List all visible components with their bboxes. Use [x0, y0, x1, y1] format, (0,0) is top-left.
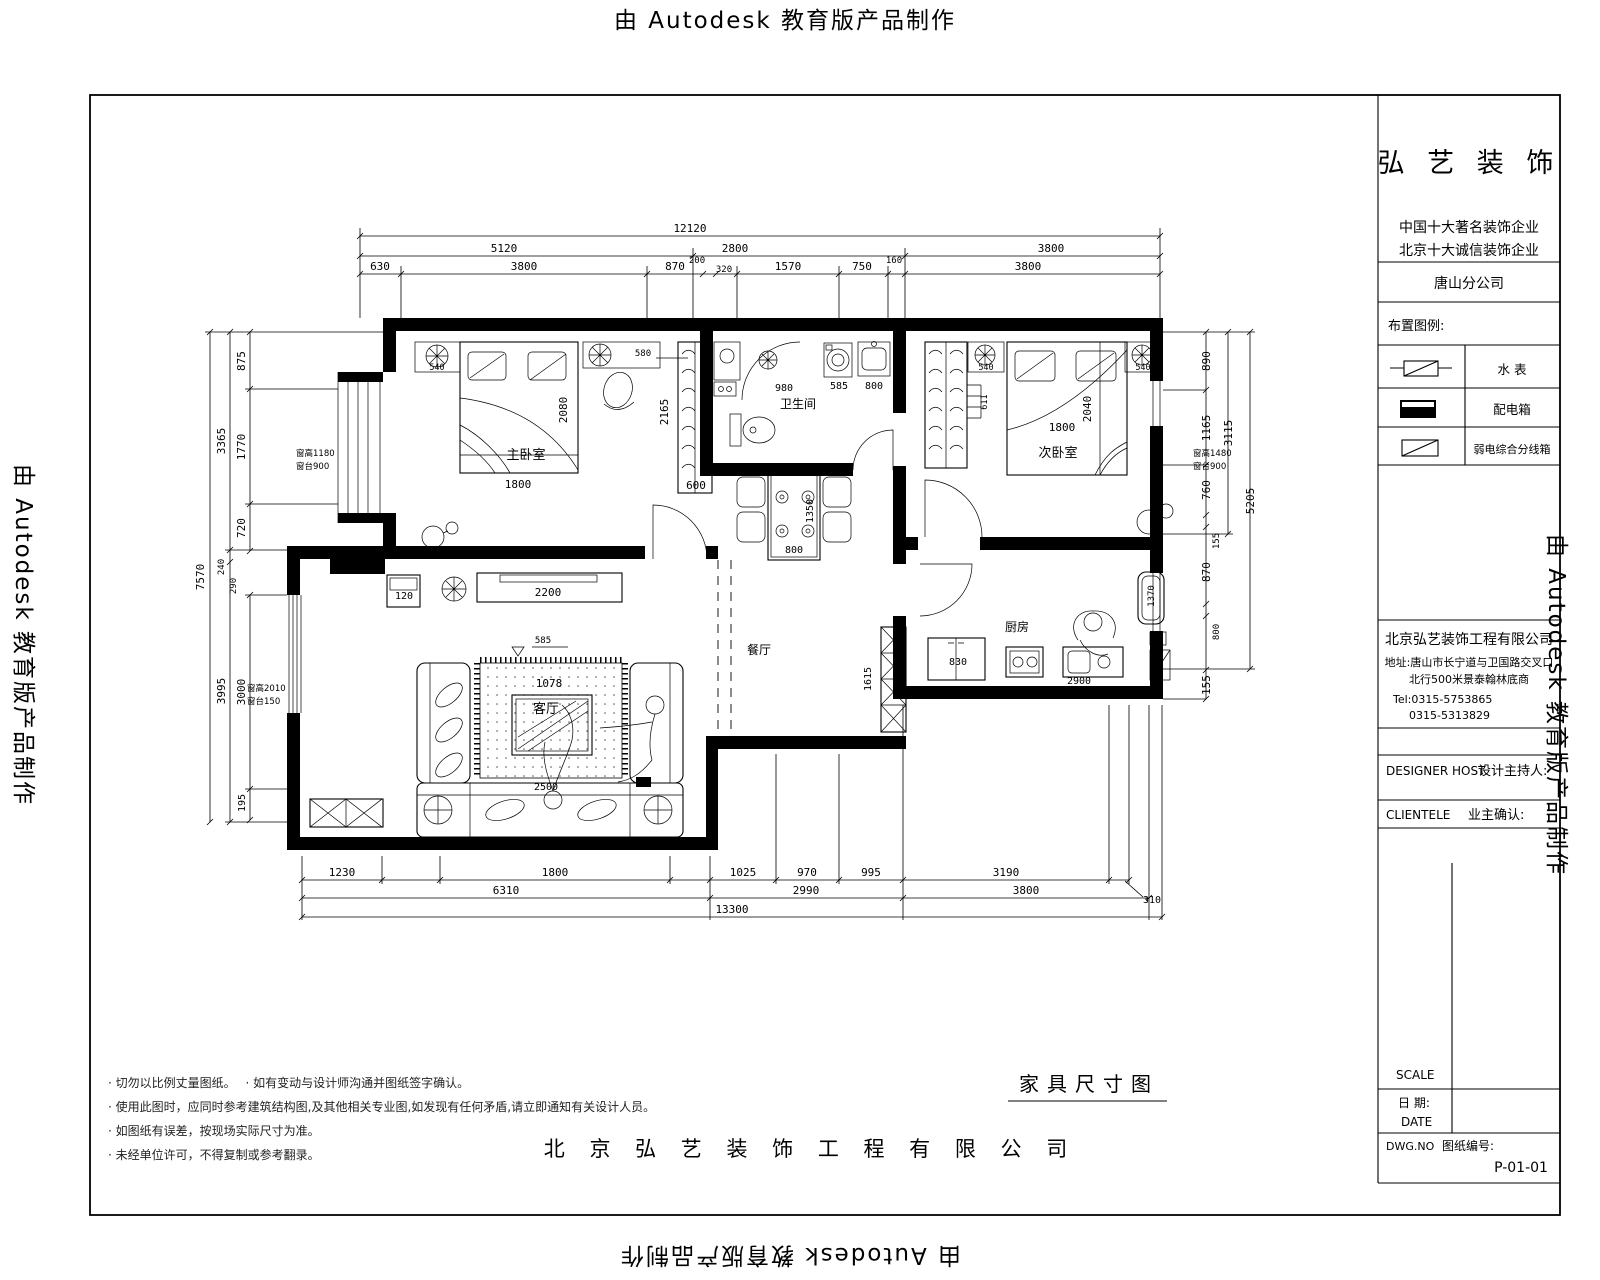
side-table-right	[644, 796, 672, 824]
svg-text:3800: 3800	[1013, 884, 1040, 897]
win-note-3a: 窗高1480	[1193, 448, 1232, 459]
dwgno-label-cn: 图纸编号:	[1442, 1138, 1494, 1153]
legend-symbol-lv-box	[1402, 440, 1438, 456]
room-label-living: 客厅	[533, 701, 559, 717]
svg-text:875: 875	[235, 351, 248, 371]
svg-text:7570: 7570	[194, 564, 207, 591]
date-label-cn: 日 期:	[1398, 1096, 1430, 1110]
door-bedroom2	[925, 480, 982, 537]
win-note-3b: 窗台900	[1193, 461, 1226, 472]
company-tel-1: Tel:0315-5753865	[1392, 693, 1492, 706]
designer-label-cn: 设计主持人:	[1478, 764, 1547, 779]
svg-text:1230: 1230	[329, 866, 356, 879]
dim-text-bottom: 1230 1800 1025 970 995 3190 310 6310 299…	[329, 866, 1161, 916]
note-3: · 如图纸有误差，按现场实际尺寸为准。	[108, 1123, 320, 1138]
stove	[1006, 647, 1043, 677]
note-4: · 未经单位许可，不得复制或参考翻录。	[108, 1147, 320, 1162]
window-bay-master	[338, 372, 380, 523]
svg-text:995: 995	[861, 866, 881, 879]
kitchen-person-figure	[1074, 611, 1116, 655]
company-address-1: 地址:唐山市长宁道与卫国路交叉口	[1385, 655, 1554, 669]
caption-text: 家具尺寸图	[1019, 1072, 1159, 1096]
toilet	[730, 414, 775, 446]
bathroom-fixtures	[714, 342, 890, 401]
wardrobe-bedroom2	[925, 342, 981, 468]
sofa-left-module	[417, 663, 470, 783]
company-address-2: 北行500米景泰翰林底商	[1409, 672, 1529, 686]
door-bathroom	[853, 430, 893, 470]
door-kitchen	[920, 564, 972, 616]
svg-text:890: 890	[1200, 351, 1213, 371]
window-bedroom2	[1153, 381, 1160, 426]
svg-text:310: 310	[1143, 895, 1161, 906]
side-table-left	[424, 796, 452, 824]
svg-text:3000: 3000	[235, 679, 248, 706]
dim-bed2-length: 2040	[1081, 396, 1094, 423]
legend-symbol-distribution-box	[1400, 400, 1436, 418]
dim-wardrobe1-width: 600	[686, 479, 706, 492]
svg-text:155: 155	[1212, 533, 1222, 549]
elevation-mark	[512, 647, 568, 656]
company-logo-text: 弘 艺 装 饰	[1378, 148, 1561, 179]
drawing-caption: 家具尺寸图	[1008, 1072, 1167, 1101]
svg-text:3800: 3800	[511, 260, 538, 273]
dim-shower: 980	[775, 383, 793, 394]
dim-kitchen-basin: 1370	[1147, 585, 1157, 607]
svg-text:290: 290	[229, 578, 239, 594]
room-label-dining: 餐厅	[747, 642, 771, 657]
dim-sofa: 2500	[534, 782, 558, 793]
svg-text:240: 240	[217, 559, 227, 575]
dim-elevation: 585	[535, 636, 551, 646]
svg-text:760: 760	[1200, 480, 1213, 500]
legend-label-distribution-box: 配电箱	[1493, 402, 1531, 417]
branch-name: 唐山分公司	[1434, 275, 1504, 292]
svg-text:1165: 1165	[1200, 415, 1213, 442]
legend-title: 布置图例:	[1388, 319, 1444, 334]
dim-washer: 585	[830, 381, 848, 392]
stool-master	[422, 522, 458, 548]
legend-label-water-meter: 水 表	[1498, 362, 1527, 377]
dim-hall-cabinet: 1615	[863, 667, 874, 691]
dim-wardrobe1-depth: 2165	[658, 399, 671, 426]
svg-text:195: 195	[237, 794, 248, 812]
slogan-1: 中国十大著名装饰企业	[1399, 219, 1539, 236]
svg-text:6310: 6310	[493, 884, 520, 897]
slogan-2: 北京十大诚信装饰企业	[1399, 242, 1539, 259]
win-note-2b: 窗台150	[247, 696, 280, 707]
room-label-bedroom2: 次卧室	[1038, 445, 1077, 461]
dim-bed1-width: 1800	[505, 478, 532, 491]
dim-text-left: 7570 3365 3995 875 1770 720 240 290 3000…	[194, 351, 248, 812]
svg-text:3365: 3365	[215, 428, 228, 455]
svg-text:155: 155	[1200, 675, 1213, 695]
dining-partition-dashed	[718, 560, 731, 736]
svg-text:1025: 1025	[730, 866, 757, 879]
dim-basin: 800	[865, 381, 883, 392]
company-tel-2: 0315-5313829	[1409, 709, 1490, 722]
door-master-bedroom	[653, 505, 707, 559]
room-label-bath: 卫生间	[780, 397, 816, 411]
svg-text:970: 970	[797, 866, 817, 879]
date-label-en: DATE	[1401, 1115, 1432, 1129]
dim-bed2-width: 1800	[1049, 421, 1076, 434]
drawing-number: P-01-01	[1494, 1160, 1548, 1176]
svg-text:3800: 3800	[1015, 260, 1042, 273]
drawing-canvas: 由 Autodesk 教育版产品制作 由 Autodesk 教育版产品制作 由 …	[0, 0, 1600, 1280]
svg-text:750: 750	[852, 260, 872, 273]
svg-text:320: 320	[716, 265, 732, 275]
room-label-kitchen: 厨房	[1005, 619, 1029, 634]
dim-fridge: 830	[949, 657, 967, 668]
dim-rug: 1078	[536, 677, 563, 690]
dim-table-length: 1350	[805, 499, 816, 523]
note-1: · 切勿以比例丈量图纸。 · 如有变动与设计师沟通并图纸签字确认。	[108, 1075, 469, 1090]
room-label-master: 主卧室	[506, 447, 545, 463]
svg-text:1770: 1770	[235, 434, 248, 461]
watermark-left: 由 Autodesk 教育版产品制作	[10, 464, 36, 806]
company-name: 北京弘艺装饰工程有限公司	[1385, 632, 1553, 648]
svg-text:870: 870	[665, 260, 685, 273]
dim-tv-cabinet: 2200	[535, 586, 562, 599]
scale-label: SCALE	[1396, 1068, 1434, 1082]
designer-label-en: DESIGNER HOST	[1386, 764, 1486, 778]
cad-sheet: 由 Autodesk 教育版产品制作 由 Autodesk 教育版产品制作 由 …	[0, 0, 1600, 1280]
svg-text:2800: 2800	[722, 242, 749, 255]
watermark-top: 由 Autodesk 教育版产品制作	[614, 8, 956, 34]
dwgno-label-en: DWG.NO	[1386, 1140, 1435, 1153]
plan-walls	[287, 318, 1163, 850]
note-2: · 使用此图时，应同时参考建筑结构图,及其他相关专业图,如发现有任何矛盾,请立即…	[108, 1099, 655, 1114]
kitchen-sink-counter	[1063, 647, 1123, 677]
svg-text:1800: 1800	[542, 866, 569, 879]
svg-text:5205: 5205	[1244, 488, 1257, 515]
svg-text:5120: 5120	[491, 242, 518, 255]
svg-text:200: 200	[689, 256, 705, 266]
svg-text:630: 630	[370, 260, 390, 273]
dim-plant1: 540	[429, 363, 444, 373]
dim-shelf: 611	[980, 394, 990, 409]
svg-text:3800: 3800	[1038, 242, 1065, 255]
dim-table-width: 800	[785, 545, 803, 556]
legend-symbol-water-meter	[1390, 361, 1452, 376]
win-note-1a: 窗高1180	[296, 448, 335, 459]
win-note-1b: 窗台900	[296, 461, 329, 472]
watermark-bottom: 由 Autodesk 教育版产品制作	[619, 1242, 961, 1268]
svg-text:720: 720	[235, 518, 248, 538]
svg-text:3995: 3995	[215, 678, 228, 705]
legend-label-lv-box: 弱电综合分线箱	[1474, 442, 1551, 456]
svg-text:160: 160	[886, 256, 902, 266]
footer-company: 北 京 弘 艺 装 饰 工 程 有 限 公 司	[544, 1137, 1076, 1161]
window-living	[289, 595, 301, 713]
dim-plant3: 540	[1135, 363, 1150, 373]
dim-overall-top: 12120	[673, 222, 706, 235]
dim-bed1-length: 2080	[557, 397, 570, 424]
bench-xpattern	[310, 799, 383, 827]
dim-text-top: 12120 5120 2800 3800 630 3800 870 200 32…	[370, 222, 1064, 275]
win-note-2a: 窗高2010	[247, 683, 286, 694]
svg-text:870: 870	[1200, 562, 1213, 582]
remote-object	[636, 777, 651, 787]
plant-living	[442, 577, 466, 601]
svg-text:2990: 2990	[793, 884, 820, 897]
dim-plant2: 540	[978, 363, 993, 373]
client-label-en: CLIENTELE	[1386, 808, 1450, 822]
window-notes: 窗高1180 窗台900 窗高2010 窗台150 窗高1480 窗台900	[247, 448, 1232, 707]
svg-text:3190: 3190	[993, 866, 1020, 879]
svg-text:1570: 1570	[775, 260, 802, 273]
client-label-cn: 业主确认:	[1468, 808, 1524, 823]
svg-text:800: 800	[1212, 624, 1222, 640]
dim-side-cabinet: 120	[395, 591, 413, 602]
svg-text:13300: 13300	[715, 903, 748, 916]
dim-desk: 580	[635, 349, 651, 359]
watermark-right: 由 Autodesk 教育版产品制作	[1543, 534, 1569, 876]
sheet-frame	[90, 95, 1560, 1215]
dim-text-right: 890 1165 760 155 870 800 155 3115 5205	[1200, 351, 1257, 695]
svg-text:3115: 3115	[1222, 420, 1235, 447]
dim-counter: 2900	[1067, 676, 1091, 687]
